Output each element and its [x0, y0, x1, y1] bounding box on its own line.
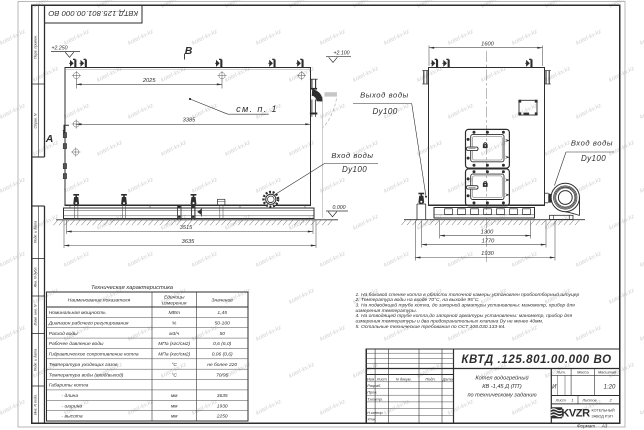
svg-text:5. Остальные технические треб: 5. Остальные технические требования по О… — [356, 324, 506, 330]
svg-text:kotel-kv.kz: kotel-kv.kz — [447, 251, 475, 269]
svg-text:kotel-kv.kz: kotel-kv.kz — [608, 288, 636, 306]
svg-text:kotel-kv.kz: kotel-kv.kz — [255, 29, 283, 47]
svg-text:Разраб.: Разраб. — [367, 383, 381, 388]
svg-text:Подп.: Подп. — [425, 376, 435, 381]
svg-text:Единицы: Единицы — [164, 294, 185, 300]
svg-text:+2.100: +2.100 — [333, 51, 349, 57]
svg-text:kotel-kv.kz: kotel-kv.kz — [511, 251, 539, 269]
svg-text:Вход воды: Вход воды — [571, 139, 613, 148]
svg-text:1930: 1930 — [217, 403, 228, 409]
svg-text:Лист: Лист — [555, 398, 567, 403]
svg-text:kotel-kv.kz: kotel-kv.kz — [447, 29, 475, 47]
svg-text:Температура уходящих газов: Температура уходящих газов — [49, 362, 118, 368]
svg-text:Пров.: Пров. — [367, 390, 377, 395]
svg-text:kotel-kv.kz: kotel-kv.kz — [511, 29, 539, 47]
svg-text:kotel-kv.kz: kotel-kv.kz — [191, 251, 219, 269]
svg-text:kotel-kv.kz: kotel-kv.kz — [127, 29, 155, 47]
svg-text:kotel-kv.kz: kotel-kv.kz — [352, 66, 380, 84]
svg-text:kotel-kv.kz: kotel-kv.kz — [511, 399, 539, 417]
svg-text:Dy100: Dy100 — [372, 107, 397, 116]
svg-text:kotel-kv.kz: kotel-kv.kz — [575, 29, 603, 47]
svg-text:Изм: Изм — [367, 376, 375, 381]
svg-text:Подп. и дата: Подп. и дата — [33, 349, 37, 372]
svg-text:1300: 1300 — [481, 229, 494, 235]
svg-text:°С: °С — [171, 372, 177, 378]
svg-text:КВТД.125.801.00.000 ВО: КВТД.125.801.00.000 ВО — [48, 9, 138, 18]
svg-text:kotel-kv.kz: kotel-kv.kz — [575, 325, 603, 343]
svg-text:Расход воды: Расход воды — [49, 331, 78, 337]
svg-text:м3/ч: м3/ч — [169, 331, 179, 337]
svg-text:kotel-kv.kz: kotel-kv.kz — [416, 66, 444, 84]
svg-text:kotel-kv.kz: kotel-kv.kz — [319, 399, 347, 417]
svg-text:3385: 3385 — [183, 118, 196, 124]
svg-text:И: И — [552, 384, 557, 390]
svg-text:kotel-kv.kz: kotel-kv.kz — [0, 103, 27, 121]
svg-text:kotel-kv.kz: kotel-kv.kz — [63, 177, 91, 195]
svg-text:kotel-kv.kz: kotel-kv.kz — [608, 214, 636, 232]
svg-text:измерения температуры.: измерения температуры. — [356, 309, 417, 314]
svg-text:0.000: 0.000 — [333, 205, 346, 211]
svg-text:kotel-kv.kz: kotel-kv.kz — [63, 251, 91, 269]
svg-text:Формат: Формат — [577, 423, 595, 428]
svg-text:kotel-kv.kz: kotel-kv.kz — [191, 177, 219, 195]
svg-text:измерения температуры и два пр: измерения температуры и два предохраните… — [356, 319, 544, 325]
svg-text:ЗАВОД РЭП: ЗАВОД РЭП — [592, 414, 613, 418]
svg-text:kotel-kv.kz: kotel-kv.kz — [0, 177, 27, 195]
svg-text:kotel-kv.kz: kotel-kv.kz — [352, 214, 380, 232]
svg-text:мм: мм — [171, 404, 178, 409]
svg-text:1: 1 — [571, 398, 573, 403]
svg-text:kotel-kv.kz: kotel-kv.kz — [160, 66, 188, 84]
svg-text:50-100: 50-100 — [215, 320, 231, 326]
svg-text:1:20: 1:20 — [604, 384, 616, 390]
svg-text:kotel-kv.kz: kotel-kv.kz — [319, 177, 347, 195]
svg-text:kotel-kv.kz: kotel-kv.kz — [639, 251, 644, 269]
svg-text:+2.250: +2.250 — [51, 45, 67, 51]
svg-text:kotel-kv.kz: kotel-kv.kz — [447, 399, 475, 417]
svg-text:kotel-kv.kz: kotel-kv.kz — [639, 103, 644, 121]
svg-text:kotel-kv.kz: kotel-kv.kz — [288, 140, 316, 158]
svg-text:kotel-kv.kz: kotel-kv.kz — [160, 140, 188, 158]
svg-text:kotel-kv.kz: kotel-kv.kz — [127, 399, 155, 417]
svg-text:не более 220: не более 220 — [207, 362, 237, 368]
svg-text:Справ. N: Справ. N — [33, 113, 37, 128]
svg-text:2025: 2025 — [142, 78, 156, 84]
svg-text:kotel-kv.kz: kotel-kv.kz — [608, 66, 636, 84]
svg-text:Значение: Значение — [211, 298, 233, 304]
svg-text:2250: 2250 — [216, 414, 228, 420]
svg-text:- ширина: - ширина — [62, 404, 83, 409]
svg-text:kotel-kv.kz: kotel-kv.kz — [127, 325, 155, 343]
svg-text:kotel-kv.kz: kotel-kv.kz — [32, 66, 60, 84]
svg-text:МПа (кгс/см2): МПа (кгс/см2) — [158, 341, 190, 347]
svg-text:kotel-kv.kz: kotel-kv.kz — [63, 29, 91, 47]
svg-text:kotel-kv.kz: kotel-kv.kz — [96, 66, 124, 84]
svg-text:Т.контр.: Т.контр. — [367, 396, 383, 401]
svg-text:1600: 1600 — [481, 41, 494, 47]
svg-text:Температура воды (вход/выход): Температура воды (вход/выход) — [49, 372, 124, 378]
svg-text:kotel-kv.kz: kotel-kv.kz — [383, 29, 411, 47]
svg-text:1930: 1930 — [481, 251, 494, 257]
svg-text:В: В — [185, 45, 193, 57]
svg-text:КОТЕЛЬНЫЙ: КОТЕЛЬНЫЙ — [592, 409, 615, 413]
svg-text:kotel-kv.kz: kotel-kv.kz — [544, 140, 572, 158]
svg-text:N докум.: N докум. — [396, 376, 412, 381]
svg-text:kotel-kv.kz: kotel-kv.kz — [224, 140, 252, 158]
svg-text:измерения: измерения — [162, 301, 187, 306]
svg-text:Лист: Лист — [376, 376, 388, 381]
svg-text:Инв. N подл.: Инв. N подл. — [33, 394, 37, 415]
svg-text:2: 2 — [609, 398, 613, 403]
svg-text:kotel-kv.kz: kotel-kv.kz — [575, 177, 603, 195]
svg-text:мм: мм — [171, 394, 178, 399]
svg-text:А: А — [45, 133, 54, 145]
svg-text:2. Температура воды на входе: 2. Температура воды на входе 70°С, на вы… — [355, 297, 480, 303]
svg-text:kotel-kv.kz: kotel-kv.kz — [383, 177, 411, 195]
svg-text:КВТД .125.801.00.000 ВО: КВТД .125.801.00.000 ВО — [461, 354, 611, 366]
svg-text:kotel-kv.kz: kotel-kv.kz — [96, 140, 124, 158]
svg-text:kotel-kv.kz: kotel-kv.kz — [575, 251, 603, 269]
svg-text:1770: 1770 — [482, 238, 495, 244]
svg-text:kotel-kv.kz: kotel-kv.kz — [255, 251, 283, 269]
svg-text:- высота: - высота — [62, 415, 83, 420]
svg-text:Масштаб: Масштаб — [598, 370, 617, 375]
svg-text:Лит.: Лит. — [556, 370, 566, 375]
svg-text:Диапазон рабочего регулировани: Диапазон рабочего регулирования — [48, 320, 129, 326]
svg-text:kotel-kv.kz: kotel-kv.kz — [191, 29, 219, 47]
svg-text:kotel-kv.kz: kotel-kv.kz — [288, 288, 316, 306]
svg-text:1,45: 1,45 — [217, 310, 227, 316]
svg-text:kotel-kv.kz: kotel-kv.kz — [288, 362, 316, 380]
svg-text:МВт: МВт — [168, 310, 179, 316]
svg-text:Котел водогрейный: Котел водогрейный — [475, 375, 528, 382]
svg-text:%: % — [172, 320, 177, 326]
svg-text:Гидравлическое сопротивление к: Гидравлическое сопротивление котла — [49, 352, 139, 358]
svg-text:kotel-kv.kz: kotel-kv.kz — [383, 399, 411, 417]
svg-text:kotel-kv.kz: kotel-kv.kz — [319, 103, 347, 121]
svg-text:kotel-kv.kz: kotel-kv.kz — [480, 66, 508, 84]
svg-text:kotel-kv.kz: kotel-kv.kz — [639, 325, 644, 343]
svg-text:Вход воды: Вход воды — [331, 151, 373, 160]
svg-text:А3: А3 — [601, 423, 608, 428]
svg-text:3635: 3635 — [217, 393, 228, 399]
svg-text:Габариты котла: Габариты котла — [49, 383, 89, 389]
svg-text:kotel-kv.kz: kotel-kv.kz — [511, 177, 539, 195]
svg-text:KVZR: KVZR — [561, 408, 590, 420]
svg-text:Масса: Масса — [577, 370, 589, 375]
svg-text:kotel-kv.kz: kotel-kv.kz — [319, 29, 347, 47]
svg-text:3. На подводящей трубе котла,: 3. На подводящей трубе котла, до запорно… — [356, 302, 576, 309]
svg-text:Дата: Дата — [442, 376, 454, 381]
svg-text:Инв. N дубл.: Инв. N дубл. — [33, 267, 37, 288]
svg-text:1. На боковой стенке котла в: 1. На боковой стенке котла в области топ… — [356, 291, 580, 298]
svg-text:kotel-kv.kz: kotel-kv.kz — [319, 325, 347, 343]
svg-text:Номинальная мощность: Номинальная мощность — [49, 310, 107, 316]
svg-text:- длина: - длина — [62, 393, 79, 399]
svg-text:kotel-kv.kz: kotel-kv.kz — [544, 66, 572, 84]
svg-text:0,6 (6,0): 0,6 (6,0) — [213, 341, 232, 347]
svg-text:kotel-kv.kz: kotel-kv.kz — [511, 103, 539, 121]
svg-text:Наименование показателя: Наименование показателя — [68, 298, 131, 304]
svg-text:4. На отводящей трубе котла,д: 4. На отводящей трубе котла,до запорной … — [356, 312, 573, 319]
svg-text:kotel-kv.kz: kotel-kv.kz — [447, 103, 475, 121]
svg-text:kotel-kv.kz: kotel-kv.kz — [0, 251, 27, 269]
svg-text:мм: мм — [171, 415, 178, 420]
svg-text:0,06 (0,6): 0,06 (0,6) — [212, 352, 233, 358]
svg-text:по техническому заданию: по техническому заданию — [467, 392, 537, 398]
svg-text:kotel-kv.kz: kotel-kv.kz — [127, 103, 155, 121]
svg-text:kotel-kv.kz: kotel-kv.kz — [224, 66, 252, 84]
svg-text:kotel-kv.kz: kotel-kv.kz — [319, 251, 347, 269]
svg-text:Н.контр.: Н.контр. — [367, 410, 383, 415]
svg-text:kotel-kv.kz: kotel-kv.kz — [416, 140, 444, 158]
svg-text:kotel-kv.kz: kotel-kv.kz — [544, 214, 572, 232]
svg-text:kotel-kv.kz: kotel-kv.kz — [0, 399, 27, 417]
svg-text:kotel-kv.kz: kotel-kv.kz — [127, 251, 155, 269]
svg-text:50: 50 — [219, 331, 225, 337]
svg-text:Утв.: Утв. — [367, 417, 376, 422]
svg-text:kotel-kv.kz: kotel-kv.kz — [0, 325, 27, 343]
svg-text:kotel-kv.kz: kotel-kv.kz — [127, 177, 155, 195]
svg-text:3635: 3635 — [182, 239, 195, 245]
svg-text:Перв. примен.: Перв. примен. — [33, 35, 37, 59]
svg-text:70/95: 70/95 — [216, 372, 229, 378]
svg-text:3515: 3515 — [180, 225, 193, 231]
svg-text:kotel-kv.kz: kotel-kv.kz — [191, 399, 219, 417]
svg-text:Взам. инв. N: Взам. инв. N — [33, 304, 37, 325]
svg-text:Dy100: Dy100 — [342, 165, 367, 174]
svg-text:kotel-kv.kz: kotel-kv.kz — [575, 103, 603, 121]
svg-text:Техническая характеристика: Техническая характеристика — [91, 285, 174, 291]
svg-text:kotel-kv.kz: kotel-kv.kz — [383, 251, 411, 269]
svg-text:kotel-kv.kz: kotel-kv.kz — [63, 103, 91, 121]
svg-text:kotel-kv.kz: kotel-kv.kz — [511, 325, 539, 343]
svg-text:°С: °С — [171, 362, 177, 368]
svg-text:Dy100: Dy100 — [581, 154, 606, 163]
svg-text:kotel-kv.kz: kotel-kv.kz — [639, 29, 644, 47]
svg-text:МПа (кгс/см2): МПа (кгс/см2) — [158, 352, 190, 358]
svg-text:см. п. 1: см. п. 1 — [236, 104, 278, 114]
svg-text:kotel-kv.kz: kotel-kv.kz — [224, 214, 252, 232]
svg-text:Рабочее давление воды: Рабочее давление воды — [49, 341, 104, 347]
svg-text:kotel-kv.kz: kotel-kv.kz — [0, 29, 27, 47]
svg-text:kotel-kv.kz: kotel-kv.kz — [639, 177, 644, 195]
svg-text:kotel-kv.kz: kotel-kv.kz — [191, 325, 219, 343]
svg-text:Листов: Листов — [581, 398, 596, 403]
svg-text:kotel-kv.kz: kotel-kv.kz — [639, 399, 644, 417]
svg-text:Подп. и дата: Подп. и дата — [33, 221, 37, 244]
svg-text:Выход воды: Выход воды — [360, 90, 409, 99]
svg-text:kotel-kv.kz: kotel-kv.kz — [255, 399, 283, 417]
svg-text:kotel-kv.kz: kotel-kv.kz — [255, 325, 283, 343]
svg-text:КВ -1,45 Д (ПТ): КВ -1,45 Д (ПТ) — [482, 384, 522, 390]
